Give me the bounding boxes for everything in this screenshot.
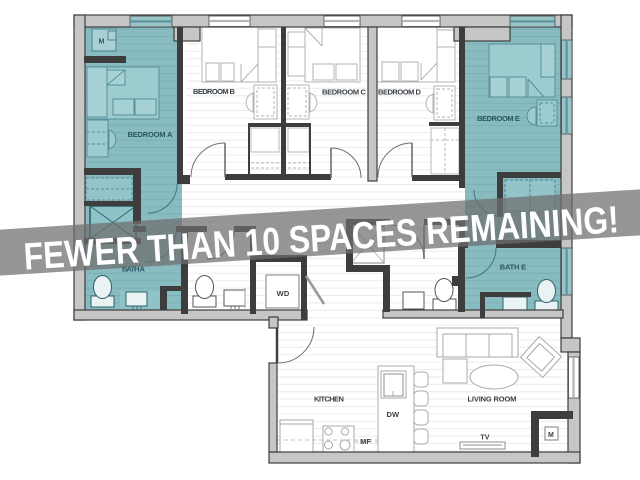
svg-text:TV: TV xyxy=(480,435,489,442)
svg-text:BEDROOM A: BEDROOM A xyxy=(128,130,173,139)
svg-text:M: M xyxy=(99,39,105,46)
svg-text:BEDROOM B: BEDROOM B xyxy=(193,87,235,96)
svg-text:DW: DW xyxy=(386,410,400,419)
svg-text:BEDROOM D: BEDROOM D xyxy=(378,88,421,97)
svg-text:BEDROOM E: BEDROOM E xyxy=(477,114,520,123)
svg-text:BEDROOM C: BEDROOM C xyxy=(322,88,366,97)
svg-text:WD: WD xyxy=(277,289,290,298)
svg-text:MF: MF xyxy=(360,437,371,446)
svg-text:BATH E: BATH E xyxy=(500,263,527,272)
svg-text:M: M xyxy=(548,432,554,439)
svg-text:LIVING ROOM: LIVING ROOM xyxy=(468,395,517,404)
svg-text:KITCHEN: KITCHEN xyxy=(314,395,344,404)
